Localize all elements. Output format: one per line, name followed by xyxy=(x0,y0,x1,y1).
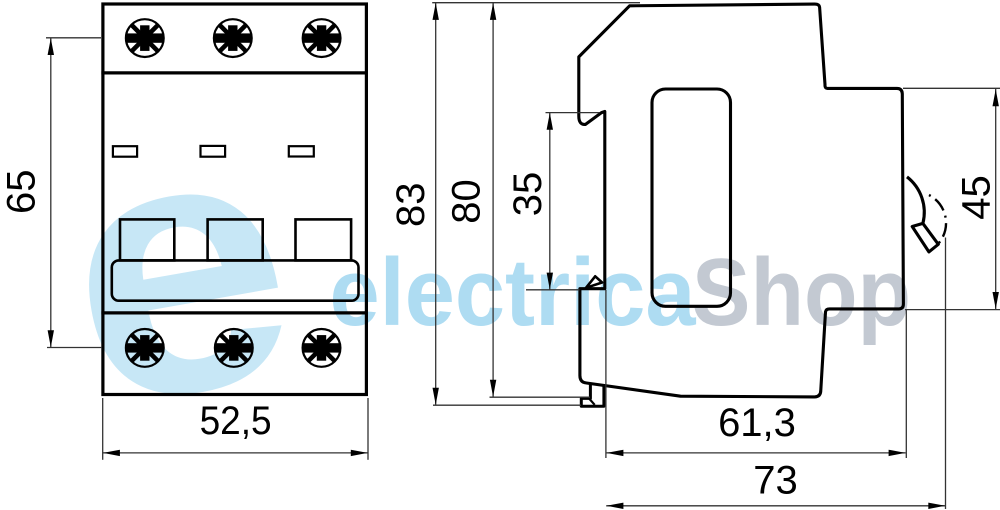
svg-text:83: 83 xyxy=(389,182,433,227)
svg-text:65: 65 xyxy=(0,169,44,214)
svg-text:73: 73 xyxy=(753,458,798,502)
svg-text:electrica: electrica xyxy=(330,239,697,346)
svg-text:e: e xyxy=(36,47,319,483)
svg-text:80: 80 xyxy=(445,179,489,224)
svg-text:Shop: Shop xyxy=(692,239,911,346)
svg-text:52,5: 52,5 xyxy=(200,399,272,443)
svg-text:35: 35 xyxy=(506,172,550,217)
svg-text:45: 45 xyxy=(954,175,998,220)
svg-text:61,3: 61,3 xyxy=(718,401,796,445)
